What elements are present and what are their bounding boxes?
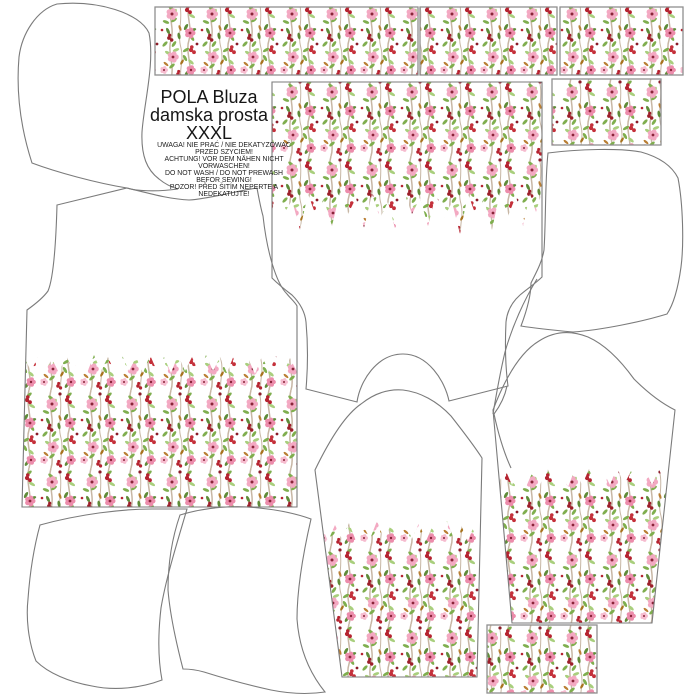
pocket-piece-2: [168, 507, 325, 694]
pocket-1-outline: [27, 509, 187, 688]
label-care-line-8: NEDEKATUJTE!: [198, 191, 249, 198]
label-product-line1: POLA Bluza: [160, 87, 258, 107]
bodice-back-piece: [272, 82, 542, 402]
hood-right-outline: [521, 149, 683, 332]
label-care-line-7: POZOR! PŘED ŠITÍM NEPERTE A: [170, 182, 279, 191]
pattern-info-label: POLA Bluza damska prosta XXXL UWAGA! NIE…: [150, 87, 291, 198]
neck-binding-strips: [155, 7, 683, 75]
cuff-rect-top-right: [552, 79, 661, 145]
sleeve-piece-right: [490, 333, 680, 623]
bodice-front-floral-border: [22, 355, 297, 507]
hood-left-outline: [18, 3, 178, 191]
label-care-line-4: VORWASCHEN!: [198, 163, 250, 170]
label-care-line-6: BEFOR SEWING!: [196, 177, 252, 184]
binding-strip-2: [420, 7, 557, 75]
hood-side-piece-left: [18, 3, 178, 191]
sewing-pattern-panel: POLA Bluza damska prosta XXXL UWAGA! NIE…: [0, 0, 700, 700]
hood-side-piece-right: [521, 149, 683, 332]
binding-strip-1: [155, 7, 418, 75]
label-care-line-3: ACHTUNG! VOR DEM NÄHEN NICHT: [164, 155, 284, 163]
pocket-2-outline: [168, 507, 325, 694]
pocket-piece-1: [27, 509, 187, 688]
label-product-line2: damska prosta: [150, 105, 269, 125]
label-care-line-5: DO NOT WASH / DO NOT PREWASH: [165, 170, 283, 177]
label-care-line-2: PRZED SZYCIEM!: [195, 149, 253, 156]
bodice-front-piece: [22, 188, 297, 507]
sleeve-piece-left: [310, 390, 510, 677]
label-care-line-1: UWAGA! NIE PRAĆ / NIE DEKATYZOWAĆ: [157, 140, 291, 149]
cuff-rect-bottom-right: [487, 625, 597, 693]
bodice-back-floral-border: [272, 82, 542, 234]
sleeve-right-floral-border: [490, 467, 680, 623]
binding-strip-3: [560, 7, 683, 75]
hood-facing-curves: [493, 279, 537, 468]
label-size: XXXL: [186, 123, 232, 143]
